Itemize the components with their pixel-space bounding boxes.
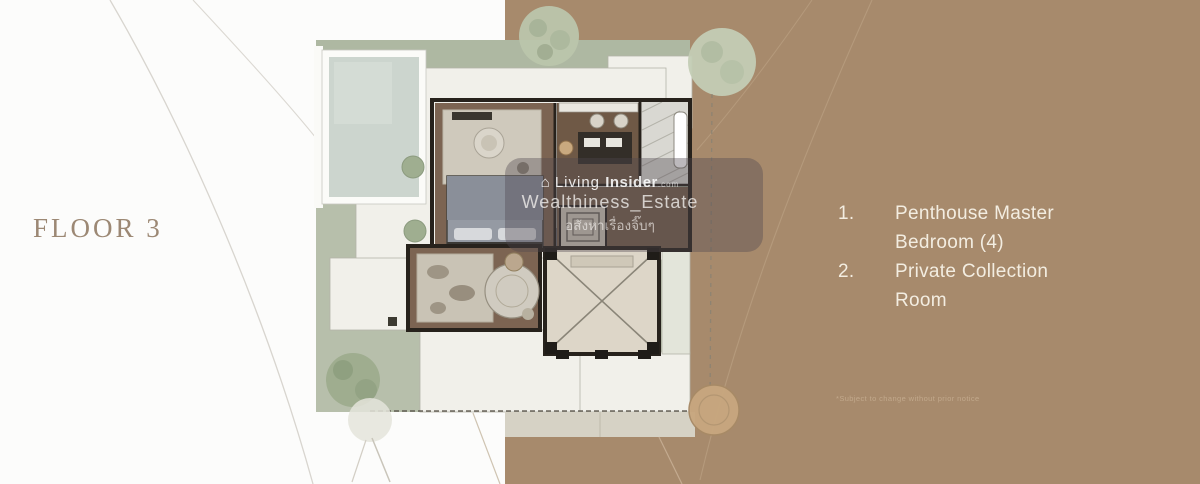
legend-item: 1. Penthouse Master Bedroom (4): [838, 199, 1108, 257]
watermark-brand: ⌂Living Insider.com: [505, 174, 715, 191]
legend-item-number: 1.: [838, 199, 895, 257]
legend-item-label: Private Collection Room: [895, 257, 1080, 315]
watermark-handle: Wealthiness_Estate: [505, 192, 715, 213]
watermark-brand-tld: .com: [658, 180, 679, 189]
house-icon: ⌂: [541, 174, 551, 191]
legend-item: 2. Private Collection Room: [838, 257, 1108, 315]
tree-tan-bottom-right-icon: [689, 385, 739, 435]
disclaimer-text: *Subject to change without prior notice: [836, 394, 980, 403]
watermark-tagline: อสังหาเรื่องจิ๊บๆ: [505, 214, 715, 236]
watermark-brand-bold: Insider: [605, 174, 658, 191]
floorplan-page: ⌂Living Insider.com Wealthiness_Estate อ…: [0, 0, 1200, 484]
void-atrium-x: [545, 248, 659, 359]
swimming-pool: [322, 50, 426, 204]
legend-item-number: 2.: [838, 257, 895, 315]
private-collection-room: [408, 246, 540, 330]
tree-small-left-icon: [402, 156, 424, 178]
watermark-overlay: ⌂Living Insider.com Wealthiness_Estate อ…: [505, 158, 763, 252]
legend-list: 1. Penthouse Master Bedroom (4) 2. Priva…: [838, 199, 1108, 315]
tree-top-center-icon: [519, 6, 579, 66]
legend-item-label: Penthouse Master Bedroom (4): [895, 199, 1080, 257]
tree-small-left2-icon: [404, 220, 426, 242]
driveway-path: [370, 411, 695, 484]
floor-title: FLOOR 3: [33, 213, 163, 244]
watermark-brand-light: Living: [555, 174, 600, 191]
